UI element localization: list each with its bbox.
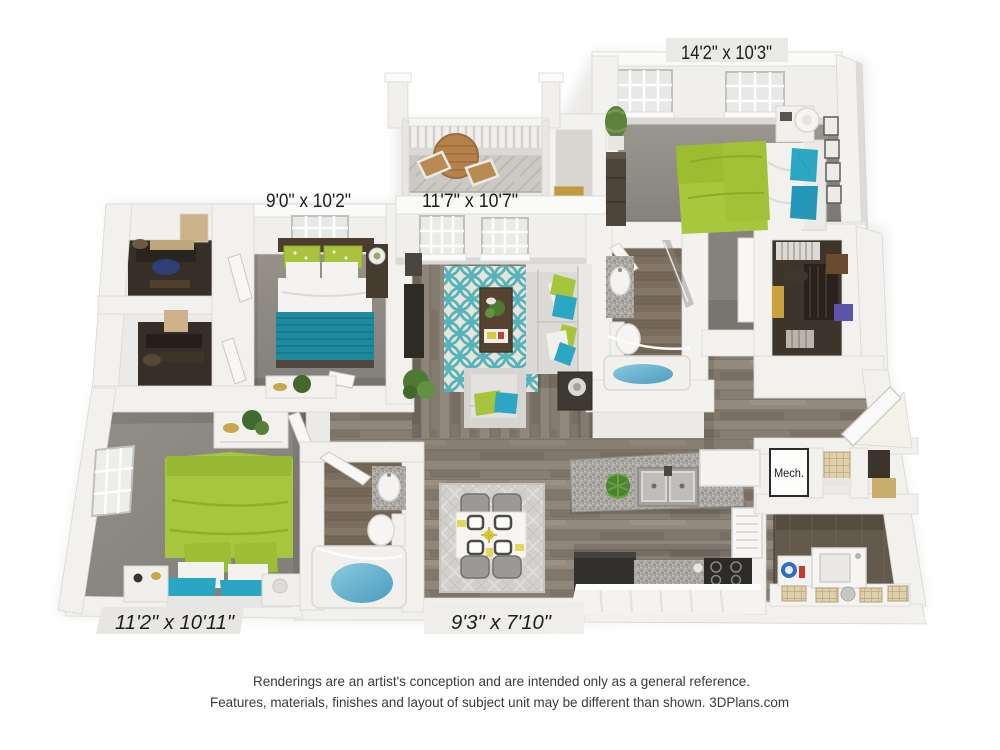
svg-text:Renderings are an artist's con: Renderings are an artist's conception an… bbox=[253, 673, 750, 689]
svg-text:Mech.: Mech. bbox=[774, 466, 804, 480]
svg-text:9'3" x 7'10": 9'3" x 7'10" bbox=[451, 612, 552, 634]
svg-text:Features, materials, finishes: Features, materials, finishes and layout… bbox=[210, 694, 789, 710]
svg-text:14'2" x 10'3": 14'2" x 10'3" bbox=[681, 43, 772, 64]
svg-text:9'0" x 10'2": 9'0" x 10'2" bbox=[266, 191, 351, 212]
svg-text:11'2" x 10'11": 11'2" x 10'11" bbox=[115, 612, 235, 634]
svg-text:11'7" x 10'7": 11'7" x 10'7" bbox=[422, 191, 518, 212]
